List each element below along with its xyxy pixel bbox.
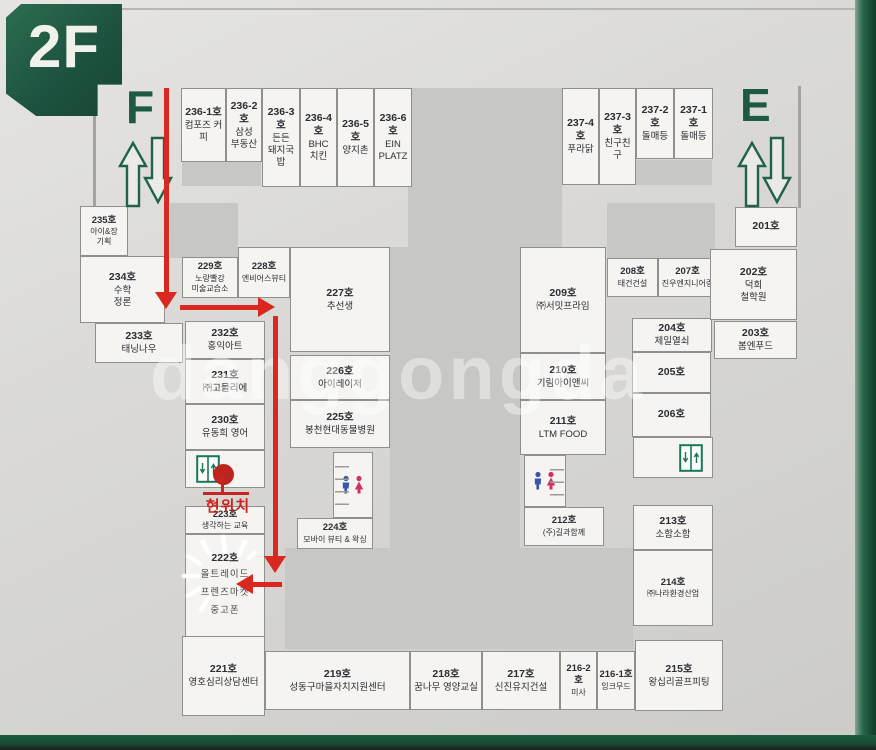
route-line-vertical-2 (273, 316, 278, 556)
unit-name: 진우엔지니어링 (662, 279, 714, 289)
unit-number: 216-1호 (599, 669, 632, 681)
sign-frame-bottom (0, 735, 876, 750)
unit-name: 제일열쇠 (655, 336, 690, 348)
unit-cell-205: 205호 (632, 352, 711, 393)
unit-name: 아이&장 기획 (90, 227, 117, 247)
elevator-icon (679, 444, 703, 472)
unit-name: 모바이 뷰티 & 왁싱 (303, 535, 367, 545)
unit-number: 201호 (752, 220, 779, 233)
unit-name: 든든 돼지국밥 (264, 133, 298, 169)
unit-number: 231호 (211, 369, 238, 382)
unit-name: 봄엔푸드 (738, 341, 773, 353)
route-arrowhead-right (258, 297, 275, 317)
restroom-cell-right (524, 455, 566, 507)
unit-name: 추선생 (327, 301, 353, 313)
unit-number: 229호 (198, 261, 223, 273)
unit-name: 생각하는 교육 (202, 521, 248, 531)
unit-number: 233호 (125, 330, 152, 343)
unit-number: 237-4호 (564, 117, 597, 143)
courtyard-area (170, 203, 238, 258)
unit-name: 영호심리상담센터 (189, 677, 259, 689)
unit-cell-230: 230호유동희 영어 (185, 404, 265, 450)
unit-name: 돌매등 (642, 131, 668, 143)
unit-name: 왕십리골프피팅 (648, 677, 709, 689)
unit-cell-227: 227호추선생 (290, 247, 390, 352)
unit-cell-236-5: 236-5호양지촌 (337, 88, 374, 187)
unit-number: 236-6호 (376, 112, 410, 138)
unit-name: 삼성 부동산 (231, 127, 257, 151)
unit-cell-224: 224호모바이 뷰티 & 왁싱 (297, 518, 373, 549)
floor-badge-label: 2F (28, 12, 100, 81)
unit-name: 돌매등 (680, 131, 706, 143)
courtyard-area (390, 247, 520, 559)
unit-cell-233: 233호태닝나우 (95, 323, 183, 363)
unit-number: 230호 (211, 414, 238, 427)
unit-name: 봉천현대동물병원 (305, 425, 375, 437)
unit-number: 222호 (211, 552, 238, 565)
unit-name: 잉크무드 (601, 682, 630, 692)
unit-number: 207호 (675, 266, 700, 278)
up-down-arrows-icon (736, 136, 792, 208)
unit-name: 양지촌 (342, 145, 368, 157)
unit-cell-214: 214호㈜나라환경산업 (633, 550, 713, 626)
unit-cell-226: 226호아이레이저 (290, 355, 390, 400)
unit-cell-203: 203호봄엔푸드 (714, 321, 797, 359)
unit-name: LTM FOOD (539, 429, 587, 441)
unit-number: 209호 (549, 287, 576, 300)
floor-map-board: 236-1호컴포즈 커피 236-2호삼성 부동산 236-3호든든 돼지국밥 … (0, 0, 876, 750)
unit-cell-207: 207호진우엔지니어링 (658, 258, 717, 297)
stairwell-e-label: E (740, 78, 771, 132)
unit-number: 210호 (549, 364, 576, 377)
sign-frame-right (855, 0, 876, 750)
unit-name: 미사 (571, 688, 586, 698)
unit-number: 228호 (252, 261, 277, 273)
unit-number: 211호 (550, 415, 577, 428)
unit-cell-236-4: 236-4호BHC 치킨 (300, 88, 337, 187)
unit-cell-204: 204호제일열쇠 (632, 318, 712, 352)
route-line-horizontal-2 (252, 582, 282, 587)
unit-number: 206호 (658, 408, 685, 421)
unit-number: 215호 (665, 663, 692, 676)
unit-cell-218: 218호꿈나무 영양교실 (410, 651, 482, 710)
unit-number: 212호 (552, 515, 577, 527)
unit-number: 216-2호 (562, 663, 595, 687)
unit-name: 친구친구 (601, 138, 634, 162)
courtyard-area (408, 88, 562, 248)
unit-number: 237-2호 (638, 104, 672, 130)
courtyard-area (285, 548, 633, 649)
unit-cell-211: 211호LTM FOOD (520, 400, 606, 455)
unit-number: 227호 (326, 287, 353, 300)
unit-cell-209: 209호㈜서밋프라임 (520, 247, 606, 353)
unit-name: 홍익아트 (208, 341, 243, 353)
unit-cell-229: 229호노랑빨강 미술교습소 (182, 257, 238, 298)
unit-cell-236-2: 236-2호삼성 부동산 (226, 88, 262, 162)
unit-cell-237-4: 237-4호푸라닭 (562, 88, 599, 185)
unit-name: 컴포즈 커피 (183, 120, 224, 144)
unit-name: 엔비어스뷰티 (242, 274, 286, 284)
unit-cell-231: 231호㈜고믈리에 (185, 359, 265, 404)
unit-number: 208호 (620, 266, 645, 278)
unit-number: 237-1호 (676, 104, 711, 130)
unit-number: 219호 (324, 668, 351, 681)
courtyard-area (607, 203, 715, 258)
unit-number: 236-3호 (264, 106, 298, 132)
unit-name: 유동희 영어 (202, 428, 248, 440)
unit-name: 수학 정론 (114, 285, 131, 309)
unit-name: 소함소함 (656, 529, 691, 541)
unit-cell-212: 212호(주)길과함께 (524, 507, 604, 546)
unit-name: 노랑빨강 미술교습소 (192, 274, 229, 294)
unit-name: EIN PLATZ (379, 139, 408, 163)
stall-lines (335, 455, 349, 515)
route-arrowhead-down-1 (155, 292, 177, 309)
unit-cell-221: 221호영호심리상담센터 (182, 636, 265, 716)
unit-name: 성동구마을자치지원센터 (289, 682, 385, 694)
unit-cell-232: 232호홍익아트 (185, 321, 265, 359)
unit-number: 202호 (740, 266, 767, 279)
unit-cell-235: 235호아이&장 기획 (80, 206, 128, 256)
unit-cell-237-3: 237-3호친구친구 (599, 88, 636, 185)
unit-number: 218호 (432, 668, 459, 681)
unit-name: 아이레이저 (318, 379, 362, 391)
unit-name: (주)길과함께 (543, 528, 585, 538)
unit-cell-210: 210호기림아이앤씨 (520, 353, 606, 400)
unit-name: ㈜나라환경산업 (647, 589, 699, 599)
unit-cell-219: 219호성동구마을자치지원센터 (265, 651, 410, 710)
unit-name: 꿈나무 영양교실 (414, 682, 478, 694)
unit-number: 204호 (658, 322, 685, 335)
unit-name: BHC 치킨 (308, 139, 328, 163)
unit-name: 태건건설 (618, 279, 647, 289)
stairwell-f-label: F (126, 80, 154, 134)
route-line-horizontal-1 (180, 305, 258, 310)
unit-cell-236-3: 236-3호든든 돼지국밥 (262, 88, 300, 187)
unit-cell-202: 202호덕희 철학원 (710, 249, 797, 320)
unit-cell-213: 213호소함소함 (633, 505, 713, 550)
unit-name: 덕희 철학원 (740, 280, 766, 304)
unit-cell-201: 201호 (735, 207, 797, 247)
unit-cell-206: 206호 (632, 393, 711, 437)
unit-number: 217호 (507, 668, 534, 681)
unit-name: ㈜고믈리에 (203, 383, 247, 395)
unit-number: 203호 (742, 327, 769, 340)
unit-name: 신진유지건설 (495, 682, 547, 694)
unit-cell-236-6: 236-6호EIN PLATZ (374, 88, 412, 187)
unit-name: ㈜서밋프라임 (536, 301, 589, 313)
unit-cell-216-1: 216-1호잉크무드 (597, 651, 635, 710)
route-arrowhead-left (236, 574, 253, 594)
board-top-edge (122, 8, 855, 10)
unit-cell-217: 217호신진유지건설 (482, 651, 560, 710)
current-location-label: 현위치 (198, 495, 258, 516)
floor-directory-photo: { "floor_badge": "2F", "stairs": { "f": … (0, 0, 876, 750)
unit-number: 226호 (326, 365, 353, 378)
unit-number: 225호 (326, 411, 353, 424)
elevator-cell-right (633, 437, 713, 478)
unit-number: 232호 (211, 327, 238, 340)
unit-number: 234호 (109, 271, 136, 284)
unit-number: 236-1호 (185, 106, 222, 119)
unit-number: 221호 (210, 663, 237, 676)
unit-name: 태닝나우 (122, 344, 157, 356)
courtyard-area (182, 161, 261, 186)
courtyard-area (636, 160, 712, 185)
unit-number: 236-5호 (339, 118, 372, 144)
current-location-pointer-stem (221, 481, 224, 492)
unit-cell-234: 234호수학 정론 (80, 256, 165, 323)
floor-badge: 2F (6, 4, 122, 116)
unit-cell-216-2: 216-2호미사 (560, 651, 597, 710)
unit-cell-236-1: 236-1호컴포즈 커피 (181, 88, 226, 162)
unit-number: 237-3호 (601, 111, 634, 137)
restroom-cell-left (333, 452, 373, 518)
unit-number: 213호 (659, 515, 686, 528)
unit-number: 205호 (658, 366, 685, 379)
route-arrowhead-down-2 (264, 556, 286, 573)
unit-number: 224호 (323, 522, 348, 534)
unit-cell-237-2: 237-2호돌매등 (636, 88, 674, 159)
unit-cell-225: 225호봉천현대동물병원 (290, 400, 390, 448)
unit-cell-228: 228호엔비어스뷰티 (238, 247, 290, 298)
route-line-vertical-1 (164, 88, 169, 292)
unit-cell-208: 208호태건건설 (607, 258, 658, 297)
unit-name: 푸라닭 (567, 144, 593, 156)
unit-cell-237-1: 237-1호돌매등 (674, 88, 713, 159)
unit-number: 214호 (661, 577, 686, 589)
unit-number: 235호 (92, 215, 117, 227)
unit-cell-215: 215호왕십리골프피팅 (635, 640, 723, 711)
unit-number: 236-4호 (302, 112, 335, 138)
unit-number: 236-2호 (228, 100, 260, 126)
wall-segment (798, 86, 801, 208)
unit-name: 기림아이앤씨 (537, 378, 589, 390)
stall-lines (550, 458, 564, 504)
